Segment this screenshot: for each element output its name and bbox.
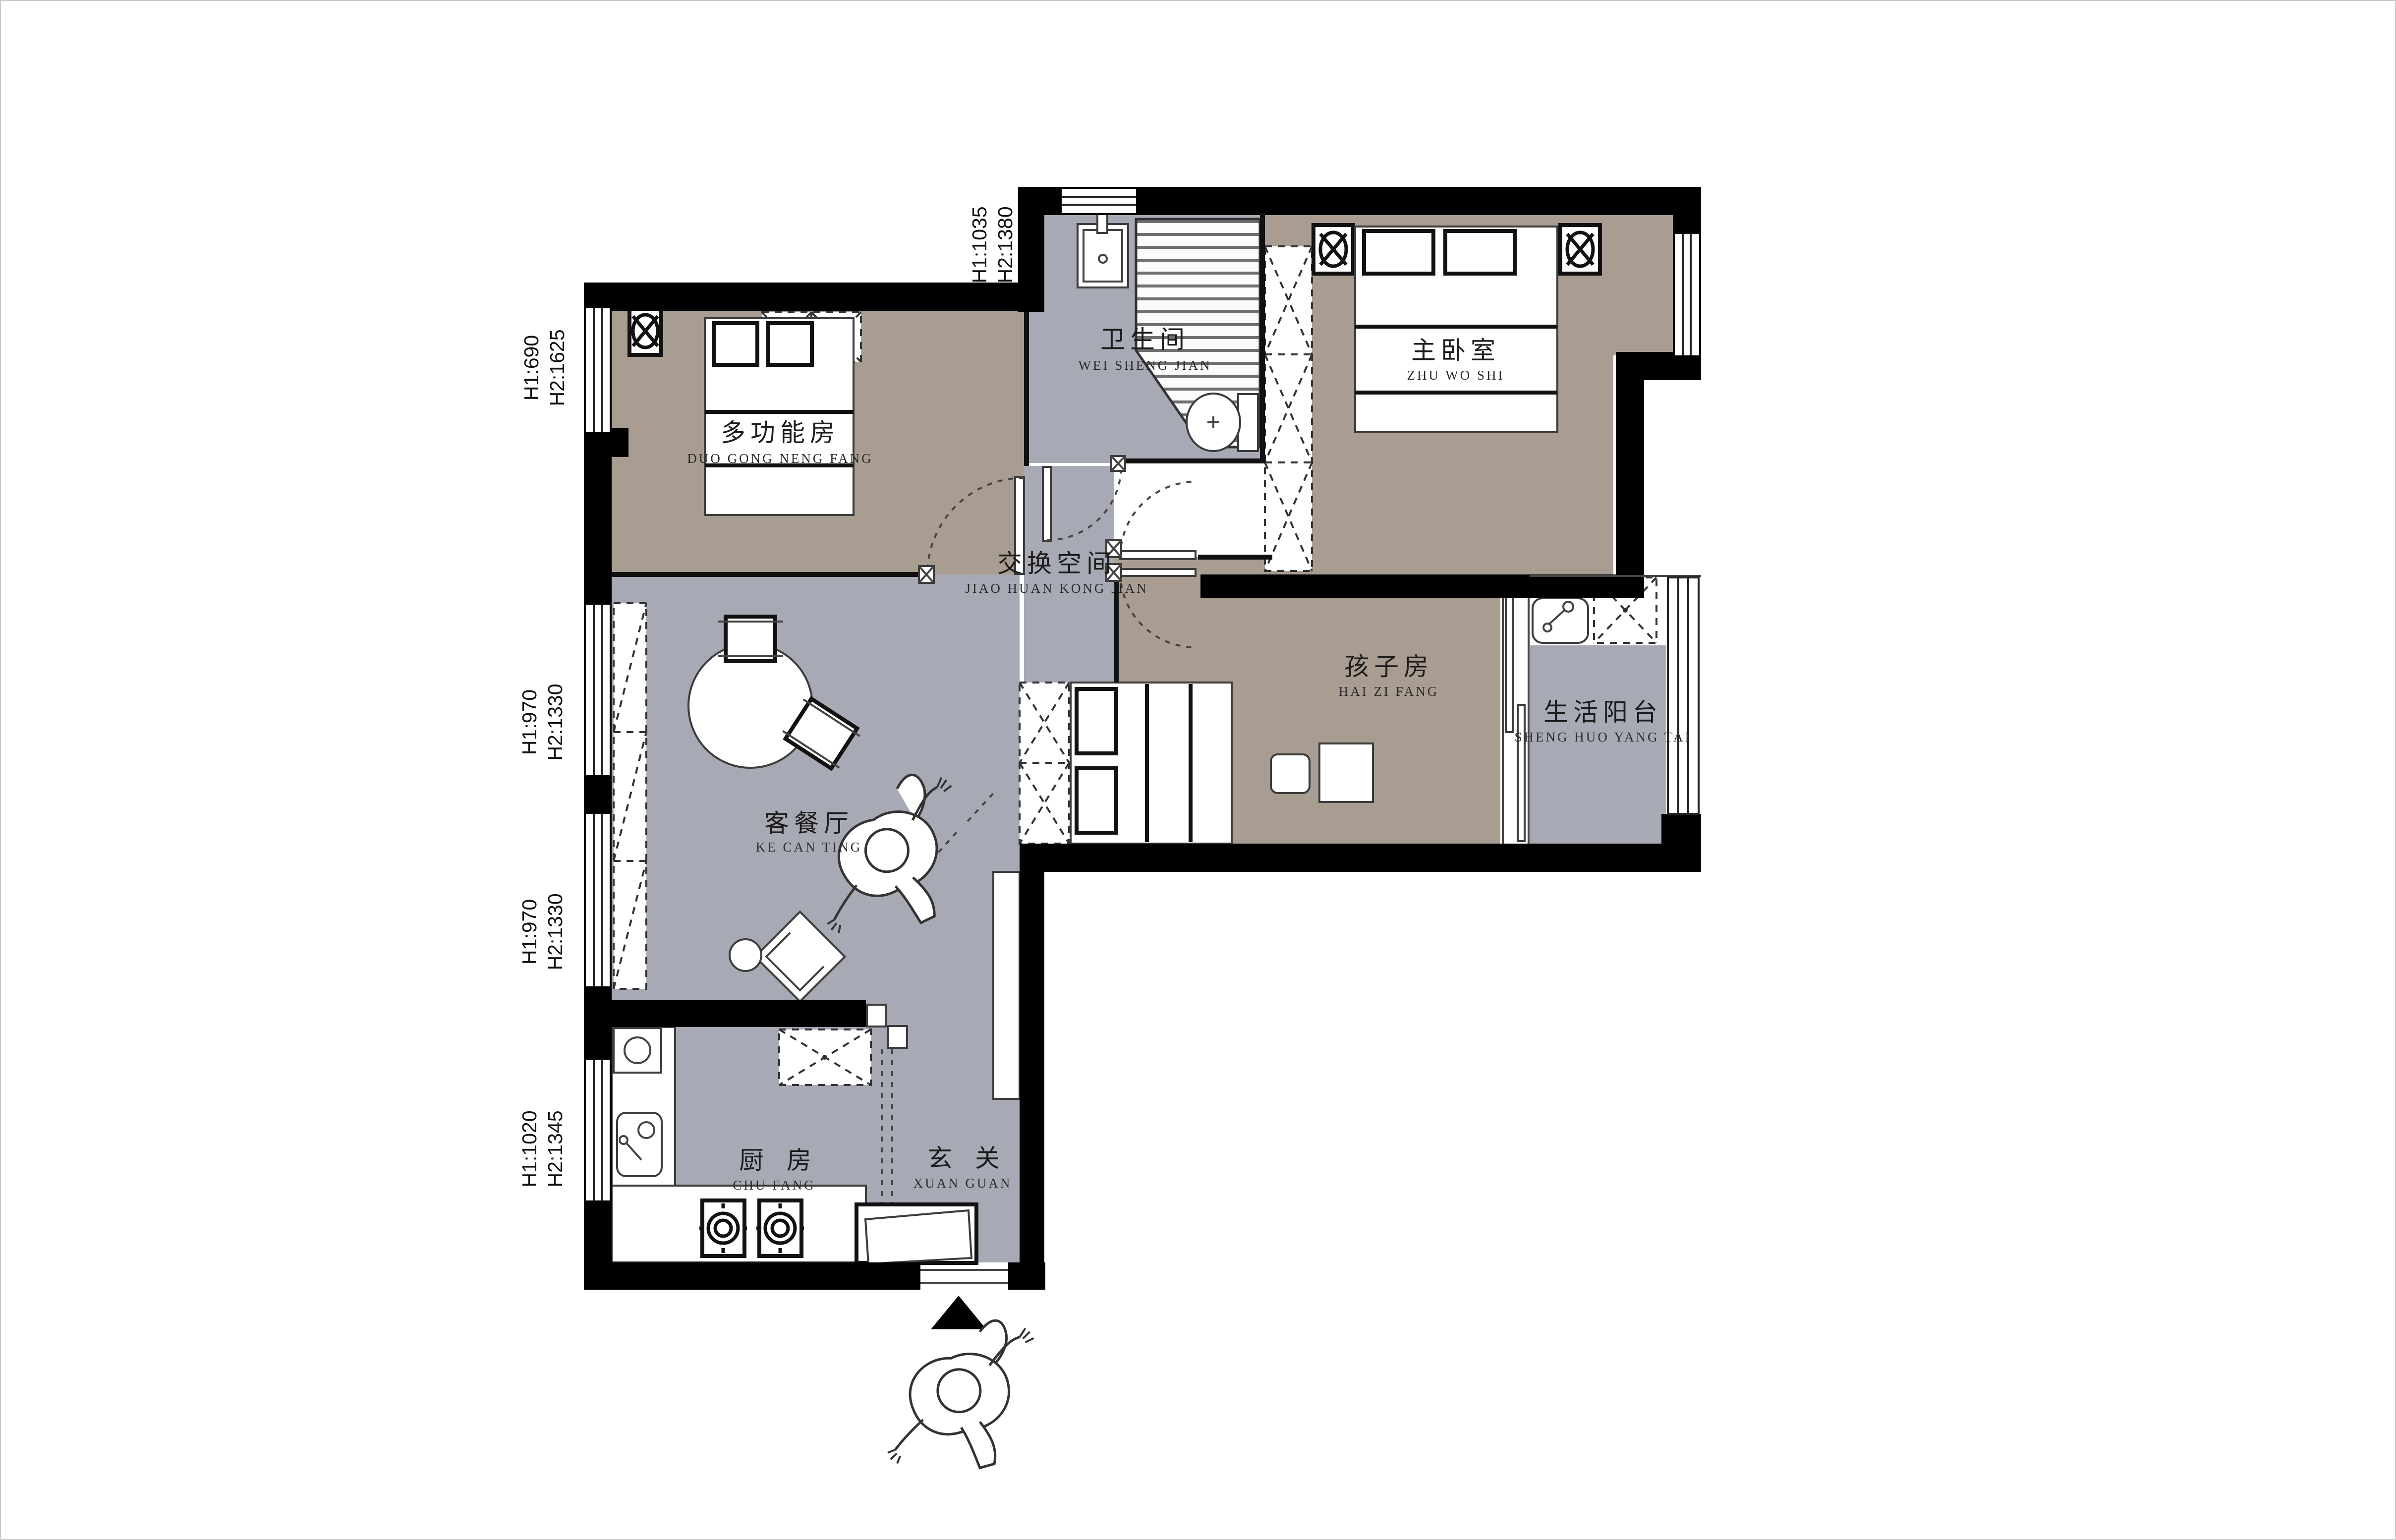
nightstand-left [1313, 225, 1353, 274]
entry-door-open-leaf [856, 1204, 976, 1264]
window-left-1 [586, 308, 610, 432]
svg-text:H1:970: H1:970 [518, 689, 541, 755]
wall-post [919, 566, 934, 583]
master-wardrobe [1265, 246, 1312, 571]
kids-desk [1319, 743, 1373, 802]
master-bedroom-door [1120, 482, 1196, 559]
wall-balcony-corner [1661, 814, 1701, 845]
multi-room-bed [705, 318, 854, 515]
label-kids-room: 孩子房 [1344, 653, 1433, 681]
refrigerator [779, 1029, 871, 1085]
wall-right-mid [1616, 380, 1644, 574]
annotation-left-window-2: H1:970 H2:1330 [518, 684, 567, 760]
kids-wardrobe [1020, 683, 1069, 844]
kitchen-alcove [614, 1028, 661, 1073]
nightstand-right [1560, 225, 1600, 274]
wall-bottom-corner [1008, 1262, 1045, 1290]
label-living-dining-py: KE CAN TING [756, 840, 862, 855]
wall-entry-right [1020, 872, 1044, 1290]
window-bedroom-right [1675, 234, 1699, 355]
window-top-bathroom [1062, 189, 1136, 213]
floorplan-drawing: 多功能房 DUO GONG NENG FANG 卫生间 WEI SHENG JI… [1, 1, 2396, 1540]
kids-bed [1071, 683, 1232, 844]
stove-burner-left [699, 1200, 747, 1256]
svg-text:H1:1035: H1:1035 [968, 206, 991, 283]
wall-top-main [1037, 187, 1701, 215]
label-multi-function-room-py: DUO GONG NENG FANG [687, 451, 873, 466]
annotation-left-window-4: H1:1020 H2:1345 [518, 1110, 567, 1187]
entry-cabinet [993, 872, 1020, 1099]
master-bed [1355, 227, 1557, 432]
annotation-left-window-1: H1:690 H2:1625 [520, 329, 569, 406]
balcony-sliding-door [1503, 576, 1529, 844]
svg-text:H1:690: H1:690 [520, 335, 543, 400]
label-kids-room-py: HAI ZI FANG [1339, 684, 1439, 699]
entry-arrow-icon [931, 1296, 986, 1329]
wall-bedroom-bottom [1200, 574, 1644, 598]
kids-chair [1271, 754, 1310, 793]
label-exchange-space-py: JIAO HUAN KONG JIAN [965, 581, 1148, 596]
label-master-bedroom-py: ZHU WO SHI [1407, 368, 1505, 383]
wall-kitchen-top [612, 1000, 866, 1027]
entry-furniture [993, 872, 1020, 1099]
label-kitchen-py: CHU FANG [733, 1178, 815, 1193]
window-left-4 [586, 1060, 610, 1200]
label-living-dining: 客餐厅 [764, 809, 854, 837]
floorplan-page: 多功能房 DUO GONG NENG FANG 卫生间 WEI SHENG JI… [0, 0, 2396, 1540]
balcony-sink [1533, 598, 1588, 643]
entrance-markers [871, 1296, 1050, 1481]
annotation-left-window-3: H1:970 H2:1330 [518, 893, 567, 970]
west-cabinet [614, 603, 646, 989]
toilet [1187, 394, 1258, 451]
kitchen-sink [617, 1113, 662, 1176]
exhaust-fan-icon [629, 307, 661, 355]
label-entry-py: XUAN GUAN [913, 1176, 1012, 1191]
wall-top-left [584, 283, 1024, 311]
svg-text:H2:1330: H2:1330 [544, 684, 567, 760]
svg-text:H1:970: H1:970 [518, 899, 541, 965]
label-kitchen: 厨房 [739, 1146, 834, 1174]
svg-text:H2:1625: H2:1625 [546, 329, 569, 406]
svg-text:H2:1330: H2:1330 [544, 893, 567, 970]
label-master-bedroom: 主卧室 [1411, 337, 1500, 364]
dining-chair-top [718, 617, 783, 661]
svg-text:H1:1020: H1:1020 [518, 1110, 541, 1187]
stove-burner-right [756, 1200, 804, 1256]
window-left-2 [586, 605, 610, 775]
person-figure-entry [871, 1315, 1050, 1480]
stool [730, 939, 761, 971]
label-service-balcony-py: SHENG HUO YANG TAI [1514, 730, 1691, 744]
label-entry: 玄关 [927, 1144, 1023, 1172]
label-exchange-space: 交换空间 [997, 550, 1116, 577]
label-service-balcony: 生活阳台 [1543, 698, 1662, 726]
wall-bottom-left [584, 1262, 920, 1290]
svg-text:H2:1380: H2:1380 [994, 206, 1017, 283]
label-multi-function-room: 多功能房 [721, 419, 840, 447]
window-balcony-right [1668, 577, 1699, 814]
label-bathroom-py: WEI SHENG JIAN [1079, 358, 1212, 373]
wall-post [1111, 456, 1125, 471]
wall-step [1616, 352, 1701, 380]
floor-balcony [1530, 645, 1666, 844]
annotation-top-window: H1:1035 H2:1380 [968, 206, 1017, 283]
wall-kids-bottom [1020, 844, 1701, 872]
svg-text:H2:1345: H2:1345 [544, 1110, 567, 1187]
label-bathroom: 卫生间 [1100, 326, 1190, 353]
wall-pier-left [612, 428, 628, 457]
window-left-3 [586, 814, 610, 986]
